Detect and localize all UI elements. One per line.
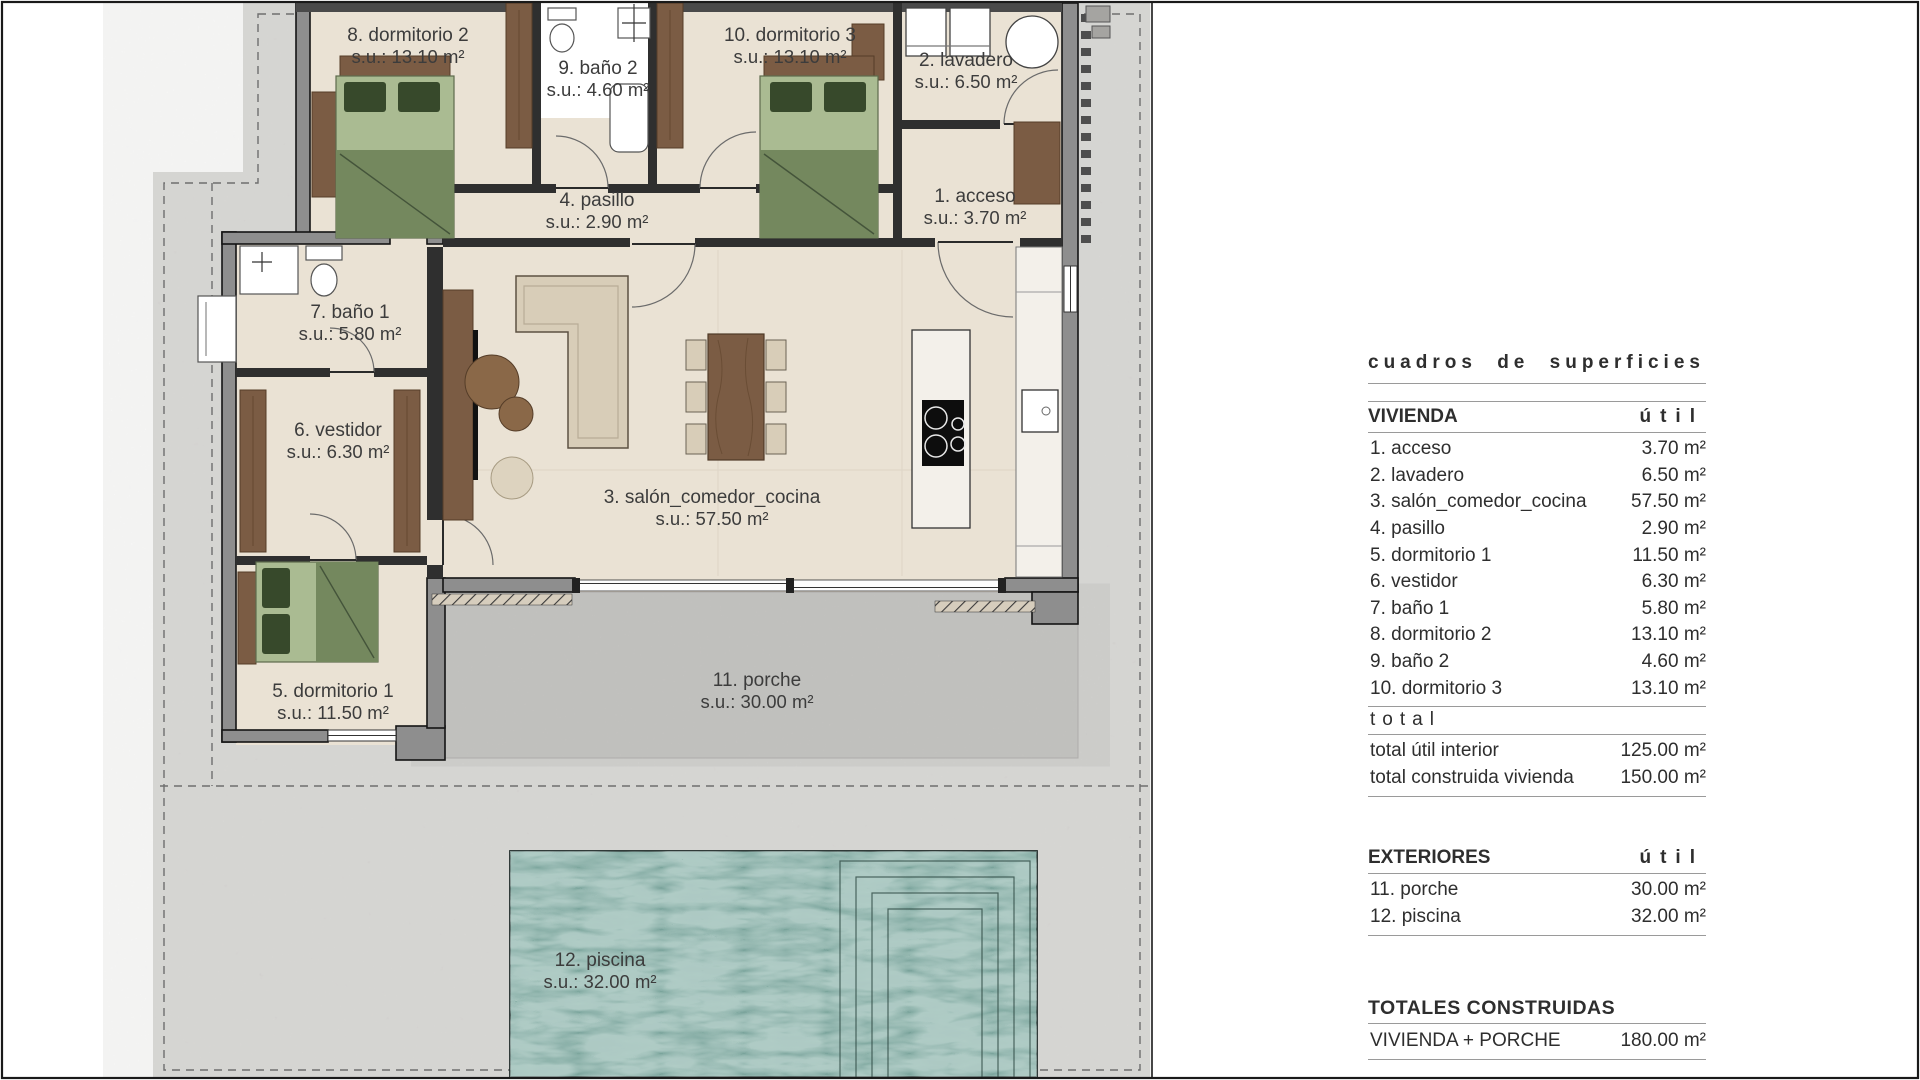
sliding-glass-doors xyxy=(572,578,1006,593)
table-row: 4. pasillo2.90 m² xyxy=(1368,516,1706,543)
kitchen-island xyxy=(912,330,970,528)
room-name: 12. piscina xyxy=(543,950,656,971)
exteriores-header: EXTERIORES xyxy=(1368,847,1490,869)
table-row: VIVIENDA + PORCHE180.00 m² xyxy=(1368,1027,1706,1054)
room-label-salon: 3. salón_comedor_cocina s.u.: 57.50 m² xyxy=(604,487,821,529)
bed-dormitorio1 xyxy=(256,562,378,662)
room-area: s.u.: 32.00 m² xyxy=(543,971,656,992)
room-label-piscina: 12. piscina s.u.: 32.00 m² xyxy=(543,950,656,992)
vivienda-header-row: VIVIENDA útil xyxy=(1368,401,1706,433)
vivienda-rows: 1. acceso3.70 m² 2. lavadero6.50 m² 3. s… xyxy=(1368,433,1706,706)
room-name: 10. dormitorio 3 xyxy=(724,25,856,46)
coffee-table-small xyxy=(499,397,533,431)
table-row: 6. vestidor6.30 m² xyxy=(1368,569,1706,596)
room-name: 11. porche xyxy=(700,670,813,691)
vivienda-header: VIVIENDA xyxy=(1368,406,1458,428)
bed-dormitorio2 xyxy=(336,76,454,238)
dining-set xyxy=(686,334,786,460)
room-label-lavadero: 2. lavadero s.u.: 6.50 m² xyxy=(915,50,1018,92)
room-area: s.u.: 57.50 m² xyxy=(604,508,821,529)
room-name: 5. dormitorio 1 xyxy=(272,681,393,702)
table-row: 10. dormitorio 313.10 m² xyxy=(1368,675,1706,702)
table-row: 11. porche30.00 m² xyxy=(1368,877,1706,904)
room-label-bano1: 7. baño 1 s.u.: 5.80 m² xyxy=(299,302,402,344)
room-area: s.u.: 4.60 m² xyxy=(547,79,650,100)
util-column-header: útil xyxy=(1640,847,1705,869)
table-row: 9. baño 24.60 m² xyxy=(1368,649,1706,676)
table-row: total útil interior125.00 m² xyxy=(1368,738,1706,765)
room-area: s.u.: 13.10 m² xyxy=(724,46,856,67)
table-row: 12. piscina32.00 m² xyxy=(1368,904,1706,931)
total-subheader: total xyxy=(1368,706,1706,735)
room-label-porche: 11. porche s.u.: 30.00 m² xyxy=(700,670,813,712)
pouf xyxy=(491,457,533,499)
room-name: 4. pasillo xyxy=(546,190,649,211)
exteriores-header-row: EXTERIORES útil xyxy=(1368,843,1706,874)
table-row: 1. acceso3.70 m² xyxy=(1368,436,1706,463)
room-label-acceso: 1. acceso s.u.: 3.70 m² xyxy=(924,186,1027,228)
room-area: s.u.: 2.90 m² xyxy=(546,211,649,232)
room-label-vestidor: 6. vestidor s.u.: 6.30 m² xyxy=(287,420,390,462)
vivienda-table: VIVIENDA útil 1. acceso3.70 m² 2. lavade… xyxy=(1368,401,1706,797)
room-name: 7. baño 1 xyxy=(299,302,402,323)
room-area: s.u.: 11.50 m² xyxy=(272,702,393,723)
room-name: 3. salón_comedor_cocina xyxy=(604,487,821,508)
panel-title: cuadros de superficies xyxy=(1368,352,1706,384)
table-row: 7. baño 15.80 m² xyxy=(1368,596,1706,623)
room-name: 1. acceso xyxy=(924,186,1027,207)
room-label-dormitorio2: 8. dormitorio 2 s.u.: 13.10 m² xyxy=(347,25,468,67)
room-label-bano2: 9. baño 2 s.u.: 4.60 m² xyxy=(547,58,650,100)
table-row: 5. dormitorio 111.50 m² xyxy=(1368,542,1706,569)
room-area: s.u.: 13.10 m² xyxy=(347,46,468,67)
table-row: 3. salón_comedor_cocina57.50 m² xyxy=(1368,489,1706,516)
totales-header: TOTALES CONSTRUIDAS xyxy=(1368,993,1706,1024)
bed-dormitorio3 xyxy=(760,76,878,238)
room-name: 2. lavadero xyxy=(915,50,1018,71)
room-area: s.u.: 6.30 m² xyxy=(287,441,390,462)
room-area: s.u.: 30.00 m² xyxy=(700,691,813,712)
totales-table: TOTALES CONSTRUIDAS VIVIENDA + PORCHE180… xyxy=(1368,993,1706,1060)
room-area: s.u.: 6.50 m² xyxy=(915,71,1018,92)
exteriores-rows: 11. porche30.00 m² 12. piscina32.00 m² xyxy=(1368,874,1706,936)
room-name: 9. baño 2 xyxy=(547,58,650,79)
room-label-dormitorio3: 10. dormitorio 3 s.u.: 13.10 m² xyxy=(724,25,856,67)
totales-rows: VIVIENDA + PORCHE180.00 m² xyxy=(1368,1024,1706,1060)
room-area: s.u.: 5.80 m² xyxy=(299,323,402,344)
table-row: 2. lavadero6.50 m² xyxy=(1368,463,1706,490)
room-area: s.u.: 3.70 m² xyxy=(924,207,1027,228)
table-row: 8. dormitorio 213.10 m² xyxy=(1368,622,1706,649)
table-row: total construida vivienda150.00 m² xyxy=(1368,765,1706,792)
floor-plan-sheet: 1. acceso s.u.: 3.70 m² 2. lavadero s.u.… xyxy=(0,0,1920,1080)
kitchen-counter xyxy=(1016,247,1062,577)
room-label-pasillo: 4. pasillo s.u.: 2.90 m² xyxy=(546,190,649,232)
vivienda-totals: total útil interior125.00 m² total const… xyxy=(1368,735,1706,797)
room-name: 6. vestidor xyxy=(287,420,390,441)
surface-tables-panel: cuadros de superficies VIVIENDA útil 1. … xyxy=(1368,352,1706,1080)
util-column-header: útil xyxy=(1640,406,1705,428)
room-name: 8. dormitorio 2 xyxy=(347,25,468,46)
room-label-dormitorio1: 5. dormitorio 1 s.u.: 11.50 m² xyxy=(272,681,393,723)
exteriores-table: EXTERIORES útil 11. porche30.00 m² 12. p… xyxy=(1368,843,1706,936)
